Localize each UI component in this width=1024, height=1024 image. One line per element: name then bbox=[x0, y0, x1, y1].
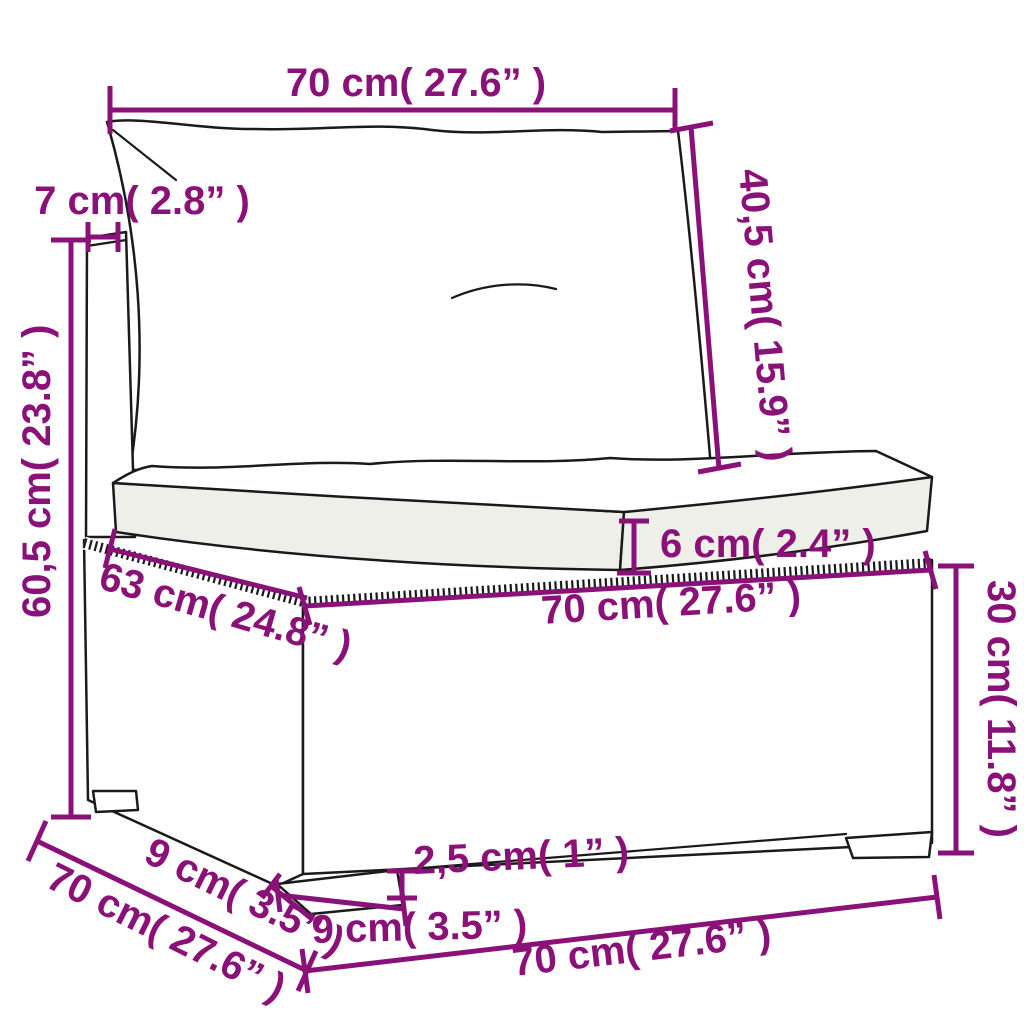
label-cushion-thickness: 6 cm( 2.4” ) bbox=[660, 522, 876, 566]
label-top-width: 70 cm( 27.6” ) bbox=[286, 61, 546, 105]
label-base-height: 30 cm( 11.8” ) bbox=[979, 580, 1023, 838]
label-back-post-width: 7 cm( 2.8” ) bbox=[34, 179, 250, 223]
label-bottom-width: 70 cm( 27.6” ) bbox=[510, 911, 773, 985]
sofa-dimension-diagram: 70 cm( 27.6” ) 40,5 cm( 15.9” ) 7 cm( 2.… bbox=[0, 0, 1024, 1024]
back-cushion bbox=[107, 120, 711, 470]
label-leg-height: 2,5 cm( 1” ) bbox=[412, 830, 629, 883]
dimension-diagram-canvas: 70 cm( 27.6” ) 40,5 cm( 15.9” ) 7 cm( 2.… bbox=[0, 0, 1024, 1024]
label-total-height: 60,5 cm( 23.8” ) bbox=[15, 325, 59, 619]
front-right-leg bbox=[846, 832, 932, 858]
label-back-cushion-height: 40,5 cm( 15.9” ) bbox=[730, 167, 799, 463]
sofa-line-art bbox=[84, 120, 932, 914]
back-left-leg bbox=[93, 791, 138, 812]
dim-line-base-height bbox=[938, 566, 974, 853]
